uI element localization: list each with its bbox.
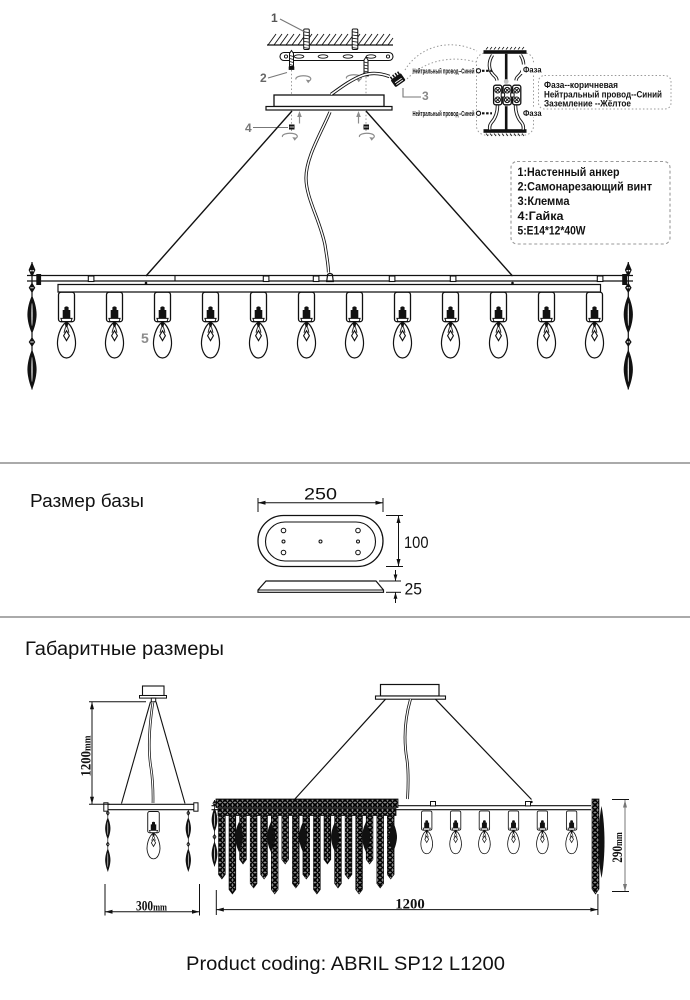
- svg-text:300mm: 300mm: [136, 899, 167, 915]
- svg-text:5: 5: [141, 330, 149, 346]
- svg-text:Фаза: Фаза: [523, 108, 542, 118]
- svg-text:3:Клемма: 3:Клемма: [518, 196, 571, 208]
- svg-text:25: 25: [405, 580, 423, 599]
- svg-text:290mm: 290mm: [610, 832, 626, 863]
- svg-text:3: 3: [422, 89, 429, 103]
- svg-text:Нейтральный провод--Синей: Нейтральный провод--Синей: [413, 67, 475, 76]
- svg-text:Фаза: Фаза: [523, 65, 542, 75]
- svg-text:1: 1: [271, 11, 278, 25]
- svg-text:100: 100: [404, 533, 429, 552]
- svg-text:Размер базы: Размер базы: [30, 491, 144, 511]
- svg-text:5:E14*12*40W: 5:E14*12*40W: [518, 225, 586, 237]
- svg-text:Заземление --Жёлтое: Заземление --Жёлтое: [544, 99, 631, 110]
- svg-text:Нейтральный провод--Синей: Нейтральный провод--Синей: [413, 109, 475, 118]
- svg-text:4: 4: [245, 121, 252, 135]
- svg-text:2: 2: [260, 71, 267, 85]
- svg-text:4:Гайка: 4:Гайка: [518, 211, 565, 223]
- svg-text:Product coding: ABRIL SP12 L12: Product coding: ABRIL SP12 L1200: [186, 954, 505, 975]
- svg-text:250: 250: [304, 485, 337, 504]
- svg-text:2:Самонарезающий винт: 2:Самонарезающий винт: [518, 182, 653, 194]
- svg-text:Габаритные размеры: Габаритные размеры: [25, 639, 224, 660]
- svg-text:1:Настенный анкер: 1:Настенный анкер: [518, 167, 620, 179]
- svg-text:1200: 1200: [395, 897, 425, 913]
- svg-text:1200mm: 1200mm: [79, 736, 95, 777]
